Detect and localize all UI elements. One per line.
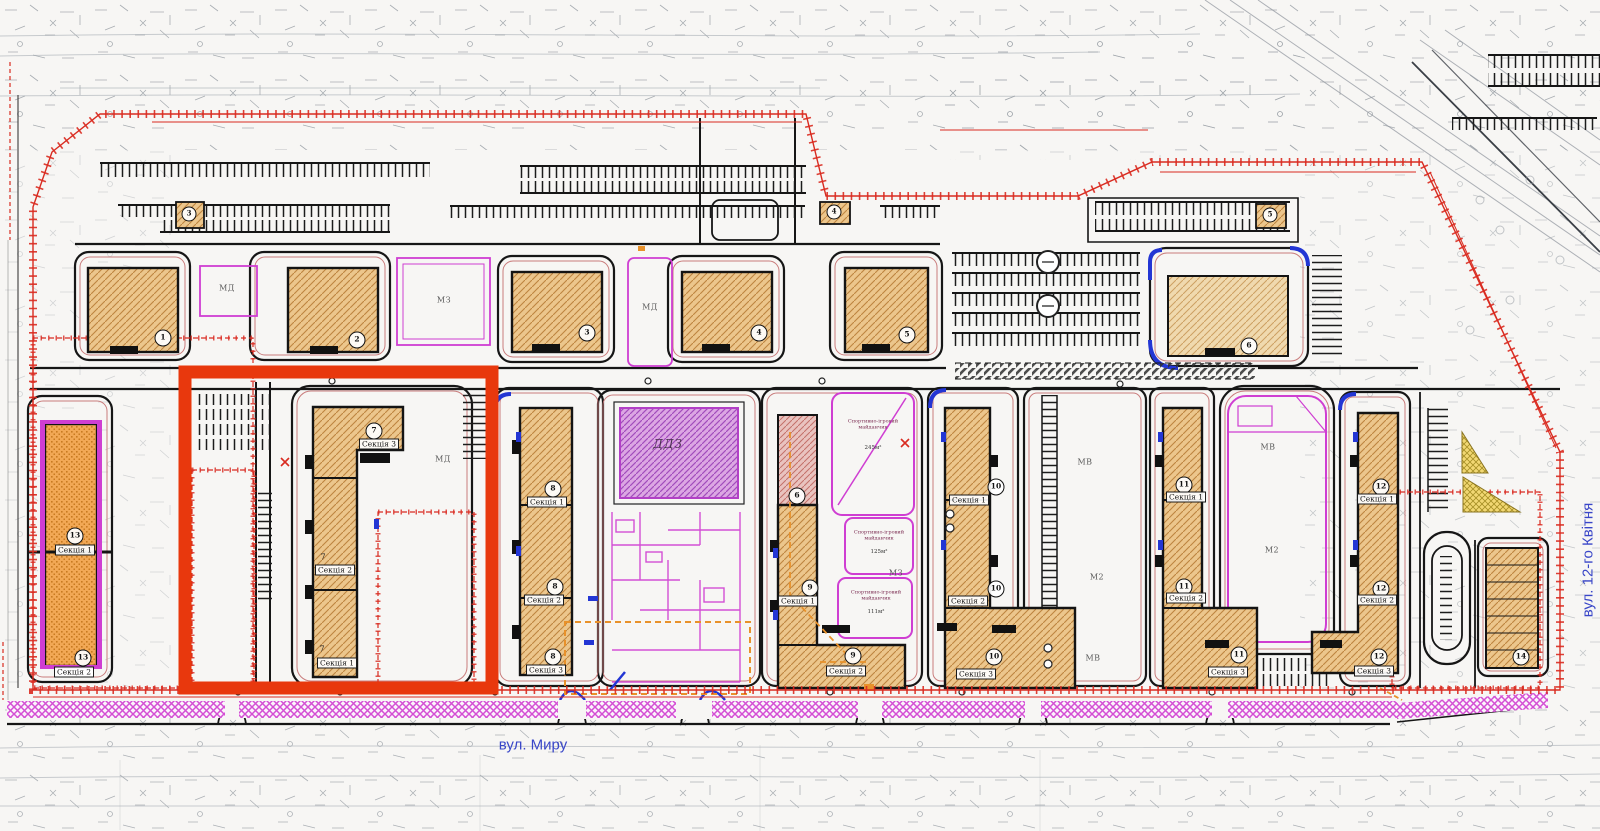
building-10-number: 10 bbox=[988, 581, 1005, 598]
building-9-number: 9 bbox=[845, 648, 862, 665]
building-kindergarten bbox=[620, 408, 738, 498]
building-13-section-1: Секція 1 bbox=[55, 545, 95, 556]
zone-label-mz: МЗ bbox=[889, 569, 903, 578]
building-4-number: 4 bbox=[751, 325, 768, 342]
zone-label-mv: МВ bbox=[1260, 443, 1275, 452]
crosswalk-band bbox=[955, 363, 1255, 379]
playground-2-area: 125м² bbox=[871, 549, 888, 555]
building-9-number: 9 bbox=[802, 580, 819, 597]
substation-number: 4 bbox=[827, 205, 842, 220]
building-13-section-2: Секція 2 bbox=[54, 667, 94, 678]
building-7-mark: 7 bbox=[320, 553, 325, 562]
playground-1-area: 245м² bbox=[865, 445, 882, 451]
zone-label-m2: М2 bbox=[1265, 546, 1279, 555]
building-12-section-2: Секція 2 bbox=[1357, 595, 1397, 606]
building-1-number: 1 bbox=[155, 330, 172, 347]
zone-label-md: МД bbox=[435, 455, 451, 464]
building-7-section-1: Секція 1 bbox=[317, 658, 357, 669]
building-12-section-3: Секція 3 bbox=[1354, 666, 1394, 677]
building-5-number: 5 bbox=[899, 327, 916, 344]
building-7-number: 7 bbox=[366, 423, 383, 440]
building-12-number: 12 bbox=[1371, 649, 1388, 666]
playground-1-label: Спортивно-ігровий майданчик bbox=[838, 419, 908, 431]
building-6 bbox=[1168, 276, 1288, 356]
building-10-section-2: Секція 2 bbox=[948, 596, 988, 607]
zone-label-mv: МВ bbox=[1085, 654, 1100, 663]
building-7-section-3: Секція 3 bbox=[359, 439, 399, 450]
street-label-myru: вул. Миру bbox=[499, 737, 567, 754]
building-6-number: 6 bbox=[1241, 338, 1258, 355]
building-10-number: 10 bbox=[988, 479, 1005, 496]
site-master-plan: 1 2 3 4 5 6 7 Секція 3 7 Секція 2 7 Секц… bbox=[0, 0, 1600, 831]
building-8-section-3: Секція 3 bbox=[526, 665, 566, 676]
building-8-number: 8 bbox=[545, 649, 562, 666]
building-8-number: 8 bbox=[545, 481, 562, 498]
building-9-annex-number: 6 bbox=[789, 488, 806, 505]
building-13-number: 13 bbox=[67, 528, 84, 545]
building-11-number: 11 bbox=[1231, 647, 1248, 664]
building-8-section-1: Секція 1 bbox=[527, 497, 567, 508]
kindergarten-label: ДДЗ bbox=[653, 437, 683, 451]
substation-number: 3 bbox=[182, 207, 197, 222]
building-12-section-1: Секція 1 bbox=[1357, 494, 1397, 505]
building-7-mark: 7 bbox=[319, 645, 324, 654]
playground-maze bbox=[612, 512, 740, 682]
building-10-number: 10 bbox=[986, 649, 1003, 666]
playground-2-label: Спортивно-ігровий майданчик bbox=[844, 530, 914, 542]
building-5 bbox=[845, 268, 928, 352]
site-plan-drawing bbox=[0, 0, 1600, 831]
building-10-section-3: Секція 3 bbox=[956, 669, 996, 680]
street-label-12-kvitnya: вул. 12-го Квітня bbox=[1580, 503, 1597, 618]
building-8-number: 8 bbox=[547, 579, 564, 596]
building-2-number: 2 bbox=[349, 332, 366, 349]
substation-number: 5 bbox=[1263, 208, 1278, 223]
building-11-section-3: Секція 3 bbox=[1208, 667, 1248, 678]
zone-label-m2: М2 bbox=[1090, 573, 1104, 582]
zone-label-mv: МВ bbox=[1077, 458, 1092, 467]
building-13-number: 13 bbox=[75, 650, 92, 667]
building-7-section-2: Секція 2 bbox=[315, 565, 355, 576]
zone-label-mz: МЗ bbox=[437, 296, 451, 305]
playground-3-label: Спортивно-ігровий майданчик bbox=[841, 590, 911, 602]
building-10-section-1: Секція 1 bbox=[949, 495, 989, 506]
building-14-number: 14 bbox=[1513, 649, 1530, 666]
zone-label-md: МД bbox=[219, 284, 235, 293]
playground-3-area: 111м² bbox=[868, 609, 885, 615]
zone-label-md: МД bbox=[642, 303, 658, 312]
building-9-section-2: Секція 2 bbox=[826, 666, 866, 677]
building-8-section-2: Секція 2 bbox=[524, 595, 564, 606]
building-9-section-1: Секція 1 bbox=[778, 596, 818, 607]
building-11-section-2: Секція 2 bbox=[1166, 593, 1206, 604]
building-3-number: 3 bbox=[579, 325, 596, 342]
building-11-section-1: Секція 1 bbox=[1166, 492, 1206, 503]
